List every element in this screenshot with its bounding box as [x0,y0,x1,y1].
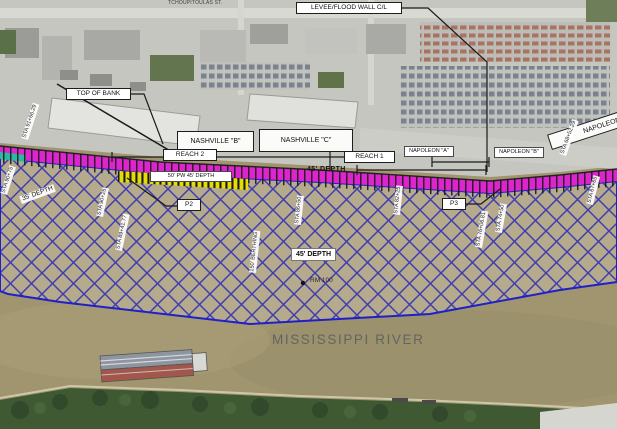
napoleon-wharf-label: NAPOLEON [547,101,617,150]
berthing-150-label: 150' BERTHING [249,230,260,273]
sta-90-75-label: STA 90+75 [0,165,16,195]
sta-91-66-label: STA 91+66.29 [21,103,39,140]
sta-67-65-label: STA 67+65 [586,175,600,205]
reach-2-label: REACH 2 [163,149,217,161]
levee-flood-wall-label: LEVEE/FLOOD WALL C/L [296,2,402,14]
tchoupitoulas-street-label: TCHOUPITOULAS ST. [168,0,222,6]
sta-74-50-label: STA 74+50 [495,203,507,233]
sta-89-41-label: STA 89+41.77 [115,214,129,251]
depth-35-label: 35' DEPTH [19,184,56,204]
napoleon-b-label: NAPOLEON "B" [494,147,544,158]
reach-1-label: REACH 1 [344,151,395,163]
depth-45-label: 45' DEPTH [291,248,336,261]
napoleon-a-label: NAPOLEON "A" [404,146,454,157]
berthing-depth-label: 50' PW 45' DEPTH [150,171,232,182]
sta-82-25-label: STA 82+25 [393,185,403,215]
band-depth-45-label: 45' DEPTH [307,166,346,173]
mississippi-river-label: MISSISSIPPI RIVER [272,332,424,347]
sta-86-50-label: STA 86+50 [294,195,304,225]
p2-label: P2 [177,199,201,211]
top-of-bank-label: TOP OF BANK [66,88,131,100]
map-canvas: TCHOUPITOULAS ST.LEVEE/FLOOD WALL C/LTOP… [0,0,617,429]
nashville-c-label: NASHVILLE "C" [259,129,353,152]
sta-76-06-label: STA 76+06.81 [475,211,488,248]
annotation-layer: TCHOUPITOULAS ST.LEVEE/FLOOD WALL C/LTOP… [0,0,617,429]
rm-100-label: RM 100 [310,277,333,284]
sta-90-25-label: STA 90+25 [96,187,109,217]
p3-label: P3 [442,198,466,210]
